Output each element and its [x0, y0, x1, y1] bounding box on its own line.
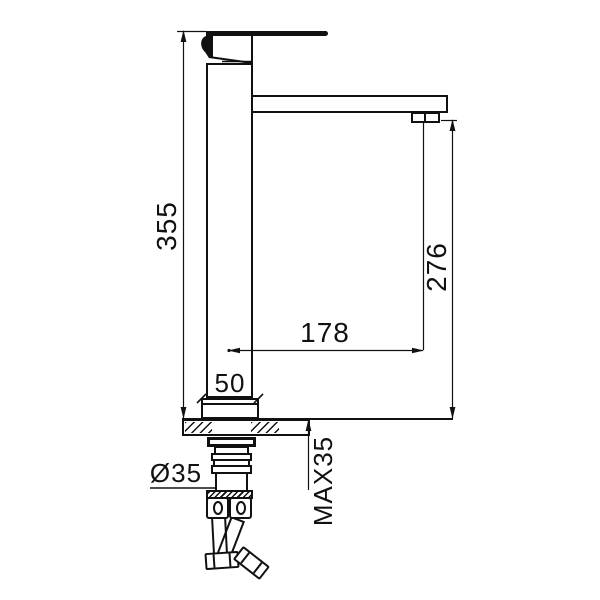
fitting-facet: [253, 562, 263, 573]
hose-nut-slot: [213, 501, 223, 515]
base-width-label: 50: [215, 370, 246, 396]
hose-nut-right: [229, 497, 252, 519]
counter-slab: [182, 419, 310, 436]
max-thickness-label: MAX35: [310, 436, 336, 526]
overall-height-label: 355: [153, 201, 181, 251]
hole-diameter-label: Ø35: [150, 460, 202, 486]
fitting-facet: [240, 552, 250, 563]
dimension-linework: [0, 0, 600, 600]
hose-nut-left: [206, 497, 229, 519]
fitting-facet: [229, 553, 232, 566]
counter-hatch-left: [185, 422, 212, 433]
aerator: [411, 112, 440, 123]
counter-hatch-right: [251, 422, 279, 433]
faucet-body-column: [206, 63, 253, 398]
spout-height-label: 276: [423, 242, 451, 292]
fitting-facet: [213, 555, 216, 568]
hose-fitting-right: [233, 546, 270, 580]
base-flange-line: [203, 403, 257, 405]
shank-tube: [215, 472, 248, 492]
faucet-spout: [251, 95, 448, 113]
dimension-178: [227, 348, 424, 354]
spout-reach-label: 178: [300, 319, 350, 347]
aerator-divider: [424, 114, 426, 121]
base-flange: [201, 398, 259, 419]
technical-drawing-canvas: 355 276 178 50 Ø35 MAX35: [0, 0, 600, 600]
lever-handle-bar: [206, 31, 328, 36]
hose-nut-slot: [236, 501, 246, 515]
lever-handle-end: [201, 36, 213, 58]
